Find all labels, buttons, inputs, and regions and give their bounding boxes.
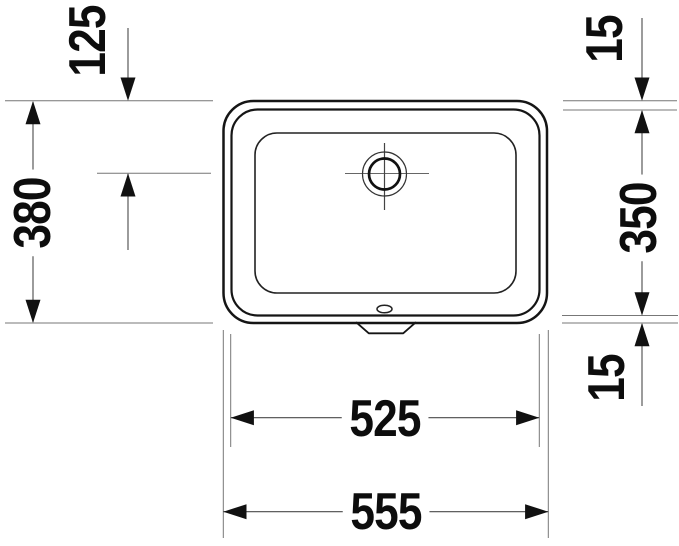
arrow-380-down xyxy=(26,300,41,323)
dimension-label-inner-depth: 350 xyxy=(613,175,665,262)
arrow-525-right xyxy=(516,410,539,425)
overflow-hole xyxy=(377,305,392,313)
arrow-125-up xyxy=(121,173,136,196)
dimension-label-rim-top: 15 xyxy=(579,15,631,62)
arrow-15t-down xyxy=(635,78,650,101)
arrow-15b-up xyxy=(635,323,650,346)
dimension-label-inner-width: 525 xyxy=(342,393,429,445)
basin-bottom-edge xyxy=(255,133,516,293)
arrow-380-up xyxy=(26,101,41,124)
arrow-555-left xyxy=(223,504,246,519)
dimension-label-drain-offset: 125 xyxy=(62,5,114,76)
arrow-125-down xyxy=(121,78,136,101)
dimension-label-overall-width: 555 xyxy=(343,486,430,538)
dimension-lines xyxy=(33,18,642,512)
technical-drawing-page: 125 380 15 350 15 525 555 xyxy=(0,0,679,546)
extension-lines xyxy=(5,101,678,538)
arrow-555-right xyxy=(525,504,548,519)
sink-dimension-drawing xyxy=(0,0,679,546)
sink-outline xyxy=(224,101,548,333)
arrow-350-down xyxy=(635,292,650,315)
arrow-350-up xyxy=(635,110,650,133)
sink-rim-edge xyxy=(232,110,540,316)
arrow-525-left xyxy=(231,410,254,425)
dimension-label-overall-depth: 380 xyxy=(7,170,59,257)
dimension-arrows xyxy=(26,78,650,520)
dimension-label-rim-bottom: 15 xyxy=(581,354,633,401)
